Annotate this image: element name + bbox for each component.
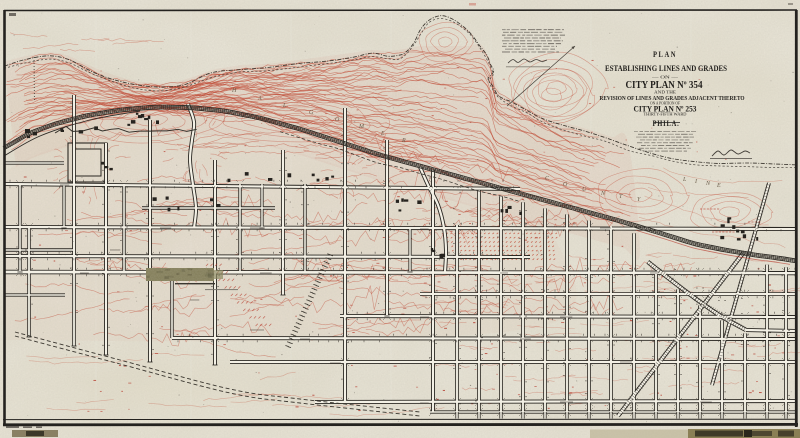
svg-text:L: L	[282, 103, 287, 109]
svg-text:E: E	[716, 183, 721, 189]
svg-text:G: G	[309, 110, 314, 116]
svg-text:O: O	[563, 182, 568, 188]
svg-text:O: O	[335, 117, 340, 123]
svg-text:E: E	[380, 131, 385, 137]
svg-text:R: R	[401, 138, 406, 144]
svg-text:AND THE: AND THE	[654, 90, 677, 95]
svg-text:H: H	[231, 88, 237, 94]
svg-text:THIRTY-FIFTH WARD: THIRTY-FIFTH WARD	[644, 113, 687, 117]
svg-text:PLAN: PLAN	[653, 49, 677, 59]
svg-text:U: U	[582, 187, 587, 193]
svg-text:PHILA.: PHILA.	[653, 118, 680, 128]
svg-text:L: L	[682, 177, 687, 183]
svg-text:M: M	[358, 124, 365, 130]
svg-text:— ON —: — ON —	[650, 75, 679, 80]
svg-text:ESTABLISHING LINES AND GRADES: ESTABLISHING LINES AND GRADES	[605, 64, 727, 73]
svg-text:A: A	[257, 96, 262, 102]
